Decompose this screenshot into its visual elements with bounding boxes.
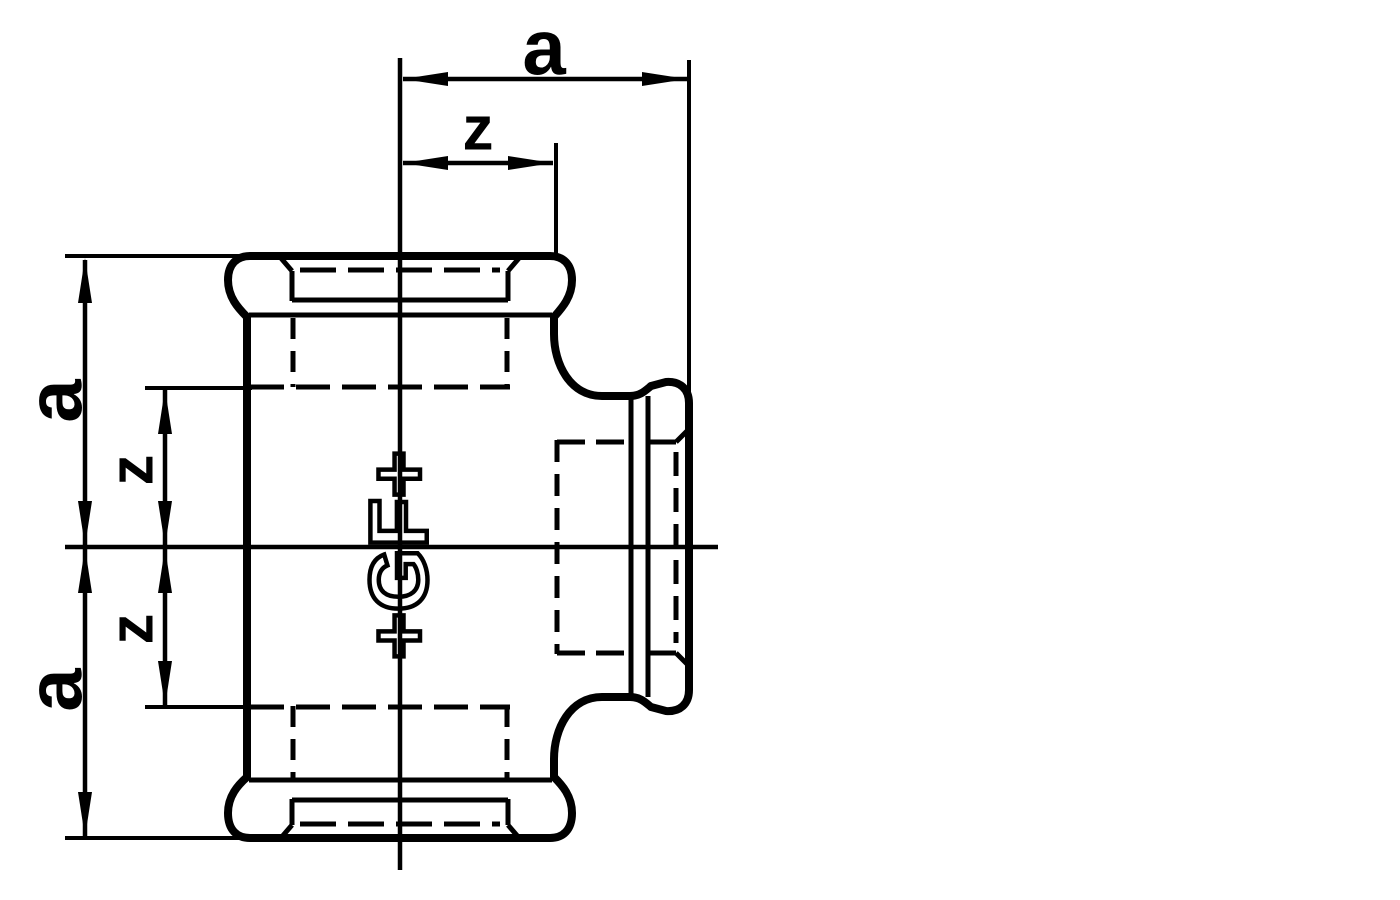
arrowhead (78, 501, 92, 546)
arrowhead (642, 72, 687, 86)
arrowhead (158, 501, 172, 546)
arrowhead (158, 661, 172, 706)
extension-lines (65, 60, 689, 838)
dim-label-left-lower-z: z (98, 614, 167, 645)
dim-label-top-z: z (463, 95, 494, 164)
arrowhead (403, 72, 448, 86)
dim-label-top-a: a (522, 3, 566, 91)
arrowhead (403, 156, 448, 170)
dim-label-left-upper-z: z (98, 455, 167, 486)
top-mouth-thread-left (280, 257, 292, 301)
arrowhead (158, 389, 172, 434)
arrowhead (78, 258, 92, 303)
arrowhead (78, 548, 92, 593)
bottom-mouth-thread-right (508, 799, 520, 839)
branch-mouth-thread-bottom (648, 653, 688, 665)
technical-drawing-canvas: a z a z z a +GF+ (0, 0, 1400, 900)
bottom-mouth-thread-left (280, 799, 292, 839)
tee-fitting-drawing: a z a z z a +GF+ (0, 0, 1400, 900)
arrowhead (508, 156, 553, 170)
branch-mouth-thread-top (648, 430, 688, 442)
dim-label-left-lower-a: a (10, 668, 98, 712)
dim-label-left-upper-a: a (10, 379, 98, 423)
arrowhead (78, 792, 92, 837)
top-mouth-thread-right (508, 257, 520, 301)
dimension-labels: a z a z z a (10, 3, 566, 712)
arrowhead (158, 548, 172, 593)
gf-logo: +GF+ (354, 450, 445, 660)
